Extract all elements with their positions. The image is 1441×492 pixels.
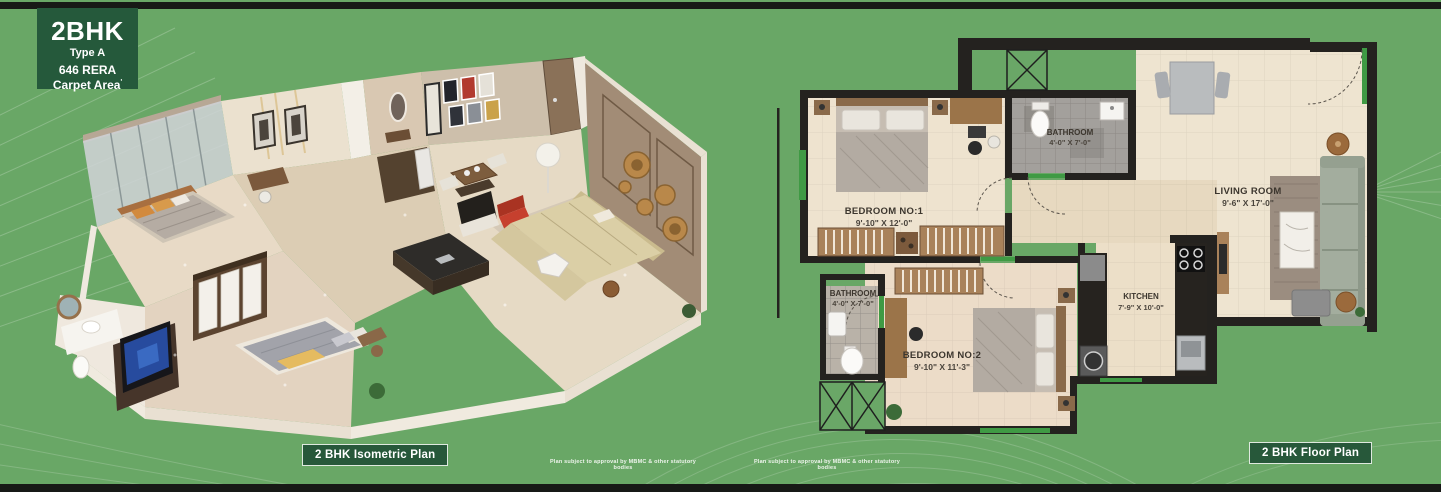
bedroom1-label: BEDROOM NO:1 xyxy=(845,206,924,217)
floor-plan-caption: 2 BHK Floor Plan xyxy=(1249,442,1372,464)
bathroom2-dims: 4'-0" X 7'-0" xyxy=(832,299,874,308)
bed1-headboard xyxy=(836,98,928,106)
floor-plan: BEDROOM NO:1 9'-10" X 12'-0" BATHROOM 4'… xyxy=(770,28,1390,442)
brochure-page: 2BHK Type A 646 RERA Carpet Area' xyxy=(0,0,1441,492)
living-label: LIVING ROOM xyxy=(1214,186,1281,197)
side-table xyxy=(603,281,619,297)
bedroom2-label: BEDROOM NO:2 xyxy=(903,350,982,361)
floor-lamp xyxy=(536,143,560,167)
coffee-table xyxy=(1280,212,1314,268)
bedroom1-dims: 9'-10" X 12'-0" xyxy=(856,218,913,228)
desk-chair xyxy=(968,141,982,155)
bathroom1-label: BATHROOM xyxy=(1047,128,1094,137)
kitchen-dims: 7'-9" X 10'-0" xyxy=(1118,303,1164,312)
unit-type-title: 2BHK xyxy=(51,18,124,44)
bedroom2-dims: 9'-10" X 11'-3" xyxy=(914,362,970,372)
wardrobe-strip xyxy=(895,268,983,294)
plant xyxy=(886,404,902,420)
stove xyxy=(1177,246,1205,272)
wash-basin xyxy=(828,312,846,336)
living-dims: 9'-6" X 17'-0" xyxy=(1222,198,1274,208)
chair xyxy=(909,327,923,341)
toilet xyxy=(841,348,863,374)
study-desk xyxy=(950,98,1002,124)
disclaimer-left: Plan subject to approval by MBMC & other… xyxy=(548,459,698,472)
washing-machine xyxy=(1080,346,1107,376)
top-black-bar xyxy=(0,2,1441,9)
desk-chair xyxy=(259,191,271,203)
plant xyxy=(369,383,385,399)
wash-basin xyxy=(1100,102,1124,120)
disclaimer-right: Plan subject to approval by MBMC & other… xyxy=(752,459,902,472)
study-unit xyxy=(885,298,907,378)
plant xyxy=(682,304,696,318)
toilet xyxy=(73,356,89,378)
bathroom2-label: BATHROOM xyxy=(830,289,877,298)
bottom-black-bar xyxy=(0,484,1441,492)
isometric-render xyxy=(25,55,725,455)
kitchen-label: KITCHEN xyxy=(1123,292,1159,301)
bed2-headboard xyxy=(1056,306,1066,392)
dining-table xyxy=(1170,62,1214,114)
hall-mirror xyxy=(390,93,406,121)
plant xyxy=(1355,307,1365,317)
kitchen-sink xyxy=(1177,336,1205,370)
side-table xyxy=(1336,292,1356,312)
bathroom1-dims: 4'-0" X 7'-0" xyxy=(1049,138,1091,147)
round-mirror xyxy=(58,296,80,318)
isometric-plan-caption: 2 BHK Isometric Plan xyxy=(302,444,448,466)
armchair xyxy=(1292,290,1330,316)
